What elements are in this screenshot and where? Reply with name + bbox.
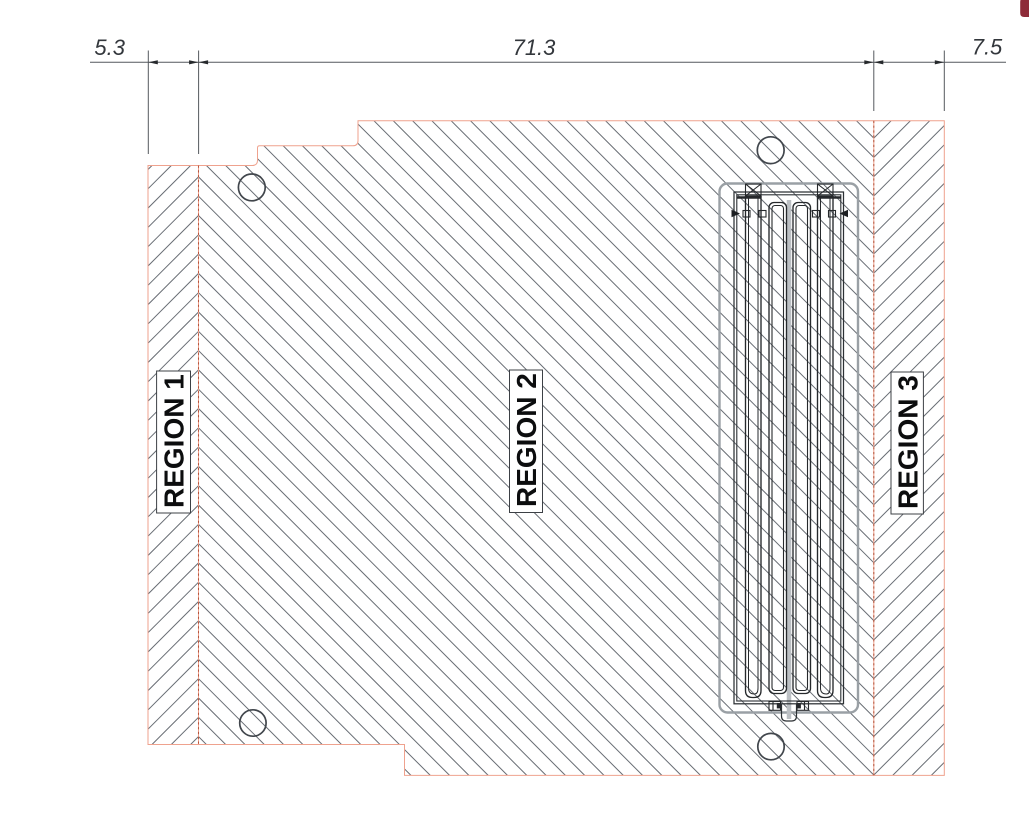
svg-text:REGION 1: REGION 1: [159, 374, 190, 508]
svg-text:71.3: 71.3: [513, 35, 557, 60]
svg-text:5.3: 5.3: [94, 35, 125, 60]
svg-text:REGION 3: REGION 3: [893, 375, 924, 509]
svg-text:REGION 2: REGION 2: [511, 373, 542, 507]
svg-text:7.5: 7.5: [972, 35, 1003, 60]
